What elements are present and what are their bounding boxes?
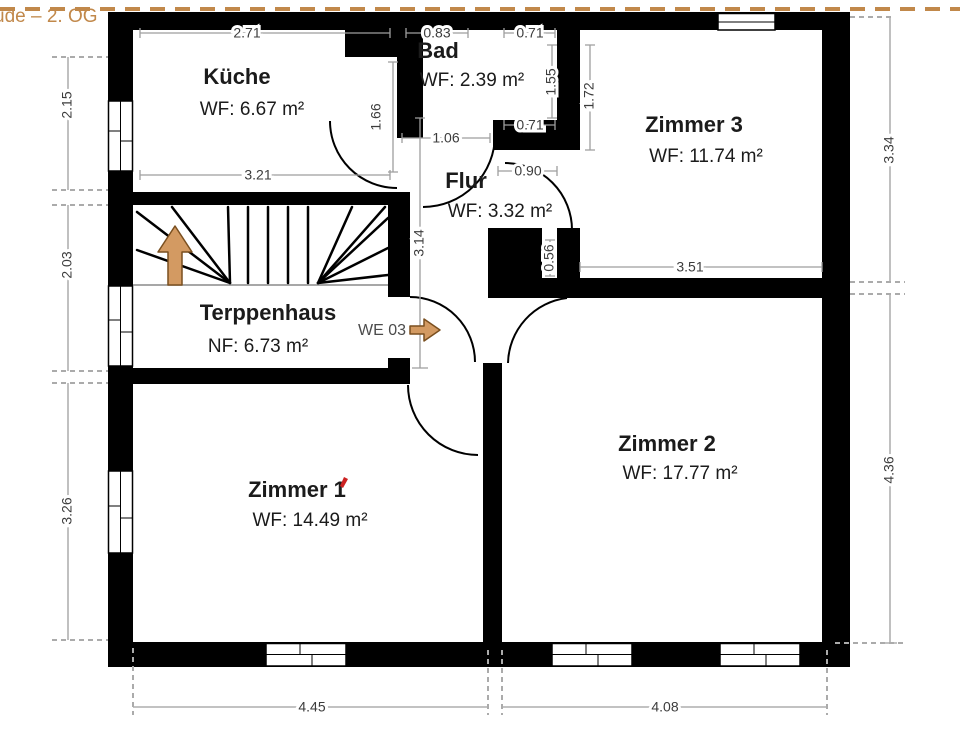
unit-label: WE 03 — [358, 322, 406, 339]
dim-right-bottom: 4.36 — [881, 456, 897, 483]
room-area-flur: WF: 3.32 m² — [448, 201, 553, 222]
room-name-treppenhaus: Terppenhaus — [200, 300, 337, 325]
wall-zimmer1-zimmer2 — [483, 363, 502, 667]
room-area-bad: WF: 2.39 m² — [420, 70, 525, 91]
door-kueche — [330, 121, 397, 188]
wall-stub-kueche-bad — [345, 12, 403, 57]
unit-entrance: WE 03 — [358, 319, 440, 341]
dim-zimmer3-stub: 0.56 — [541, 244, 557, 271]
window-kueche-left — [109, 101, 133, 171]
dim-flur-height: 3.14 — [411, 229, 427, 256]
dim-left-bottom: 3.26 — [59, 497, 75, 524]
room-name-zimmer2: Zimmer 2 — [618, 431, 716, 456]
dim-right-top: 3.34 — [881, 136, 897, 163]
dim-bad-bottom: 1.06 — [432, 130, 459, 146]
wall-right — [822, 12, 850, 667]
room-area-zimmer2: WF: 17.77 m² — [622, 463, 737, 484]
window-zimmer2-bottom-left — [552, 644, 632, 667]
dim-left-mid: 2.03 — [59, 251, 75, 278]
dim-bad-right: 1.55 — [543, 68, 559, 95]
door-zimmer2 — [508, 298, 567, 363]
window-treppenhaus-left — [109, 286, 133, 366]
wall-bad-right — [557, 12, 580, 150]
wall-zimmer2-top — [488, 278, 850, 298]
wall-treppenhaus-zimmer1 — [108, 368, 410, 384]
staircase — [133, 207, 388, 285]
door-zimmer1 — [408, 385, 478, 455]
wall-kueche-treppenhaus — [108, 192, 410, 205]
room-name-bad: Bad — [417, 38, 459, 63]
stairs-up-arrow-icon — [158, 226, 192, 285]
dim-bad-top-right: 0.71 — [516, 25, 543, 41]
dim-bottom-left: 4.45 — [298, 699, 325, 715]
dim-kueche-top: 2.71 — [233, 25, 260, 41]
plan-title: ude – 2. OG — [0, 6, 98, 27]
dimension-lines — [52, 17, 905, 715]
window-zimmer1-left — [109, 471, 133, 553]
dim-kueche-door: 1.66 — [368, 103, 384, 130]
dim-bad-bottom-right: 0.71 — [516, 117, 543, 133]
floor-plan: ude – 2. OG — [0, 0, 960, 737]
wall-treppenhaus-right-upper — [388, 205, 410, 297]
window-zimmer1-bottom — [266, 644, 346, 667]
dim-bottom-right: 4.08 — [651, 699, 678, 715]
window-zimmer2-bottom-right — [720, 644, 800, 667]
dim-zimmer3-left: 1.72 — [581, 82, 597, 109]
room-area-treppenhaus: NF: 6.73 m² — [208, 336, 308, 357]
dim-left-top: 2.15 — [59, 91, 75, 118]
room-area-kueche: WF: 6.67 m² — [200, 99, 305, 120]
room-area-zimmer1: WF: 14.49 m² — [252, 510, 367, 531]
dim-zimmer3-width: 3.51 — [676, 259, 703, 275]
dim-kueche-bottom: 3.21 — [244, 167, 271, 183]
floor-plan-page: ude – 2. OG — [0, 0, 960, 737]
window-zimmer3-top — [718, 14, 775, 31]
room-area-zimmer3: WF: 11.74 m² — [649, 146, 763, 167]
room-name-zimmer3: Zimmer 3 — [645, 112, 743, 137]
room-name-flur: Flur — [445, 168, 487, 193]
entrance-arrow-icon — [410, 319, 440, 341]
room-name-zimmer1: Zimmer 1 — [248, 477, 346, 502]
dim-flur-opening: 0.90 — [514, 163, 541, 179]
room-name-kueche: Küche — [203, 64, 270, 89]
